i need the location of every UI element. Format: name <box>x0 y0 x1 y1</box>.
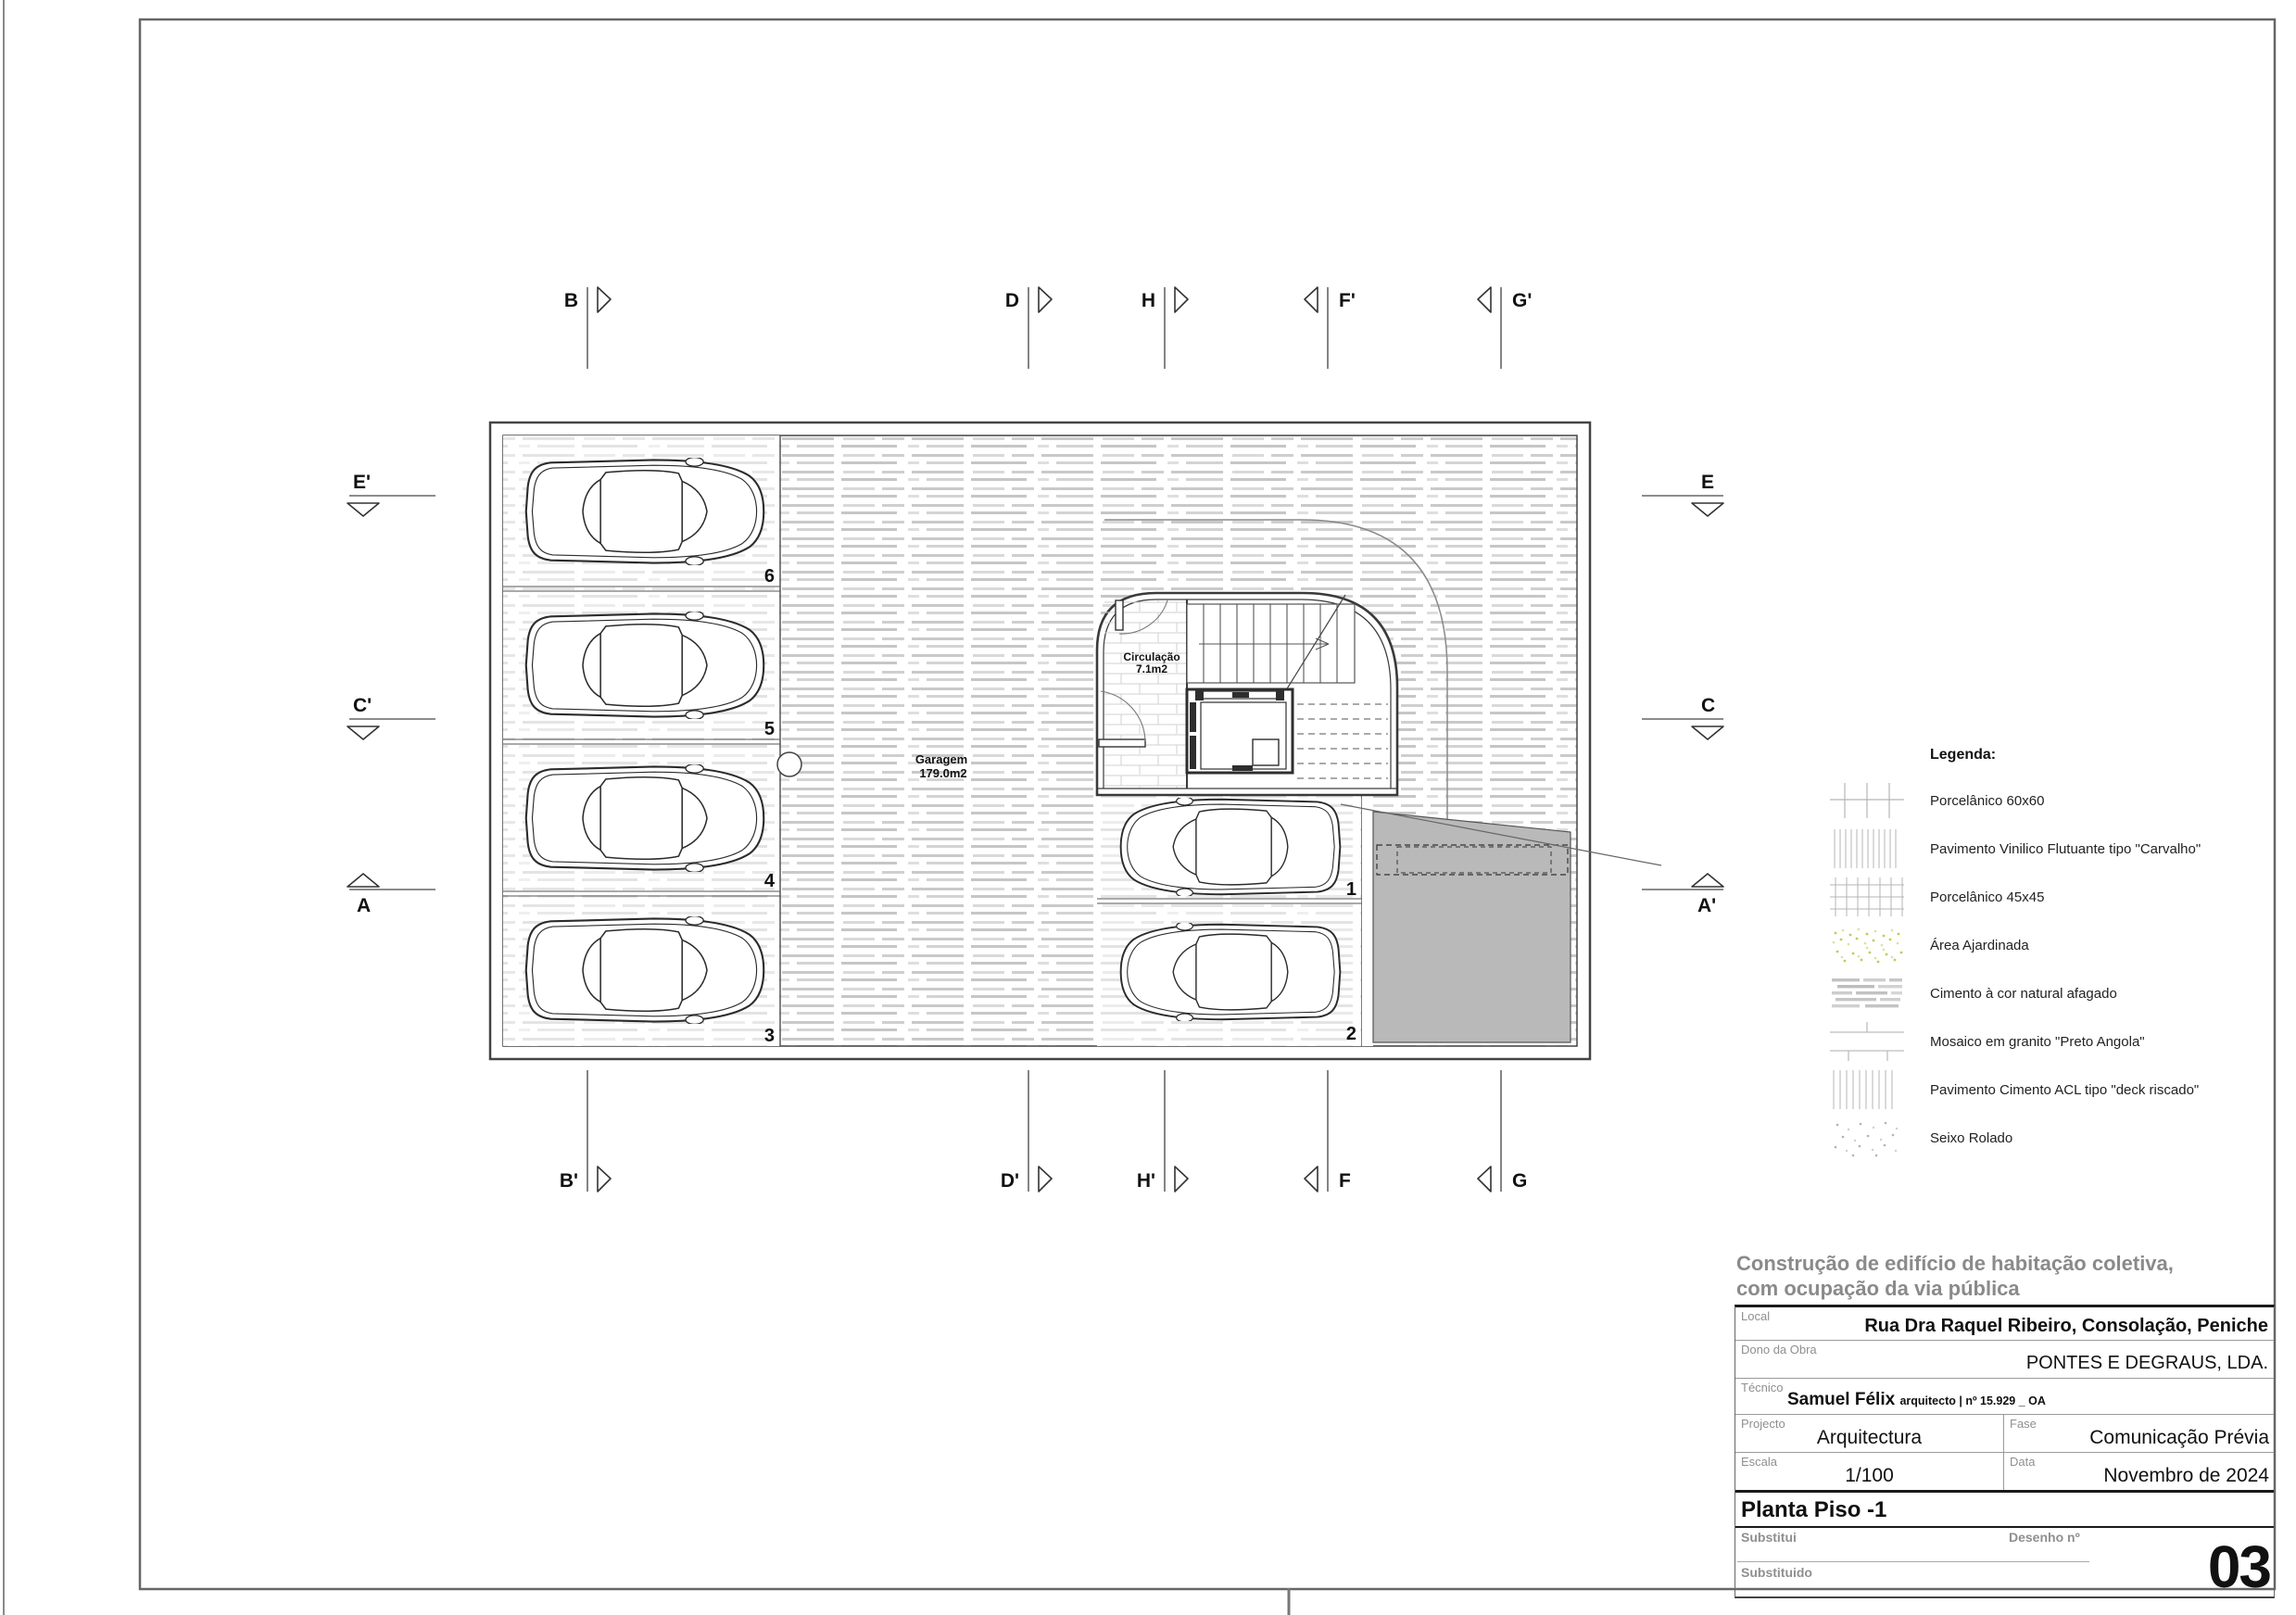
section-marker-E-prime: E' <box>347 472 435 516</box>
section-marker-D2: D' <box>1001 1070 1052 1192</box>
section-marker-G: G <box>1478 1070 1527 1192</box>
legend: Legenda: Porcelânico 60x60 Pavimento Vin… <box>1830 747 2265 1162</box>
stair-core: Circulação 7.1m2 <box>1097 593 1397 795</box>
swatch-cimento-icon <box>1830 974 1904 1013</box>
swatch-acl-icon <box>1830 1070 1904 1109</box>
swatch-porcelanico-60-icon <box>1830 781 1904 820</box>
svg-text:H: H <box>1142 290 1155 311</box>
row-tecnico: Técnico Samuel Félix arquitecto | nº 15.… <box>1735 1379 2274 1415</box>
data-value: Novembro de 2024 <box>2103 1465 2269 1487</box>
column-circle <box>777 752 801 776</box>
car-3 <box>526 916 764 1025</box>
section-marker-B: B <box>564 287 611 369</box>
row-local: Local Rua Dra Raquel Ribeiro, Consolação… <box>1735 1307 2274 1341</box>
stall-number-4: 4 <box>764 871 776 891</box>
section-marker-A: A <box>347 874 435 916</box>
legend-item-acl: Pavimento Cimento ACL tipo "deck riscado… <box>1830 1066 2265 1114</box>
section-marker-E: E <box>1642 472 1723 516</box>
swatch-porcelanico-45-icon <box>1830 877 1904 916</box>
legend-item-porcelanico-45: Porcelânico 45x45 <box>1830 873 2265 921</box>
substitui-label: Substitui <box>1741 1530 1797 1545</box>
substitui-line <box>1737 1561 2089 1562</box>
svg-text:F: F <box>1339 1170 1351 1192</box>
section-marker-C-prime: C' <box>347 695 435 739</box>
dono-label: Dono da Obra <box>1741 1343 1817 1356</box>
svg-text:B': B' <box>560 1170 578 1192</box>
car-4 <box>526 764 764 873</box>
stall-number-3: 3 <box>764 1026 775 1046</box>
row-drawing-title: Planta Piso -1 <box>1735 1493 2274 1528</box>
circulacao-label: Circulação <box>1123 650 1180 663</box>
section-marker-F: F <box>1305 1070 1351 1192</box>
garagem-label: Garagem <box>915 752 967 766</box>
tecnico-value: Samuel Félix arquitecto | nº 15.929 _ OA <box>1787 1390 2046 1410</box>
row-escala-data: Escala 1/100 Data Novembro de 2024 <box>1735 1453 2274 1493</box>
fase-value: Comunicação Prévia <box>2089 1427 2269 1449</box>
garage-plan: Circulação 7.1m2 6 5 4 3 1 2 <box>490 423 1661 1059</box>
svg-text:B: B <box>564 290 578 311</box>
car-2 <box>1121 922 1341 1022</box>
dono-value: PONTES E DEGRAUS, LDA. <box>2026 1353 2268 1374</box>
fase-label: Fase <box>2010 1417 2037 1431</box>
svg-text:E: E <box>1701 472 1714 493</box>
section-marker-H2: H' <box>1137 1070 1188 1192</box>
project-title: Construção de edifício de habitação cole… <box>1736 1251 2275 1301</box>
projecto-value: Arquitectura <box>1735 1427 2003 1449</box>
section-marker-A-prime: A' <box>1642 874 1723 916</box>
svg-text:H': H' <box>1137 1170 1155 1192</box>
escala-value: 1/100 <box>1735 1465 2003 1487</box>
legend-item-vinilico: Pavimento Vinilico Flutuante tipo "Carva… <box>1830 825 2265 873</box>
car-6 <box>526 458 764 566</box>
svg-text:C: C <box>1701 695 1715 716</box>
row-projecto-fase: Projecto Arquitectura Fase Comunicação P… <box>1735 1415 2274 1453</box>
car-1 <box>1121 797 1341 897</box>
svg-text:D: D <box>1005 290 1019 311</box>
tecnico-label: Técnico <box>1741 1381 1784 1394</box>
legend-item-seixo: Seixo Rolado <box>1830 1114 2265 1162</box>
section-marker-F-prime: F' <box>1305 287 1356 369</box>
swatch-vinilico-icon <box>1830 829 1904 868</box>
legend-title: Legenda: <box>1930 747 2265 763</box>
local-label: Local <box>1741 1309 1770 1323</box>
desenho-number: 03 <box>2208 1537 2270 1596</box>
swatch-granito-icon <box>1830 1022 1904 1061</box>
section-marker-H: H <box>1142 287 1188 369</box>
drawing-sheet: Circulação 7.1m2 6 5 4 3 1 2 <box>0 0 2296 1615</box>
legend-item-cimento: Cimento à cor natural afagado <box>1830 969 2265 1017</box>
substituido-label: Substituido <box>1741 1565 1812 1580</box>
stall-number-5: 5 <box>764 719 775 739</box>
section-marker-G-prime: G' <box>1478 287 1532 369</box>
svg-text:E': E' <box>353 472 371 493</box>
data-label: Data <box>2010 1455 2035 1469</box>
desenho-label: Desenho nº <box>2009 1530 2080 1545</box>
legend-item-porcelanico-60: Porcelânico 60x60 <box>1830 776 2265 825</box>
ramp-area <box>1373 812 1571 1042</box>
swatch-seixo-icon <box>1830 1118 1904 1157</box>
tecnico-suffix: arquitecto | nº 15.929 _ OA <box>1899 1394 2045 1407</box>
elevator <box>1187 688 1293 773</box>
svg-text:A': A' <box>1697 895 1716 916</box>
local-value: Rua Dra Raquel Ribeiro, Consolação, Peni… <box>1864 1316 2268 1337</box>
svg-text:D': D' <box>1001 1170 1019 1192</box>
svg-text:G': G' <box>1512 290 1532 311</box>
legend-item-ajardinada: Área Ajardinada <box>1830 921 2265 969</box>
section-marker-C: C <box>1642 695 1723 739</box>
row-substitui-desenho: Substitui Substituido Desenho nº 03 <box>1735 1528 2274 1596</box>
circulacao-area: 7.1m2 <box>1136 662 1167 675</box>
section-marker-D: D <box>1005 287 1052 369</box>
svg-text:F': F' <box>1339 290 1356 311</box>
legend-item-granito: Mosaico em granito "Preto Angola" <box>1830 1017 2265 1066</box>
title-block: Construção de edifício de habitação cole… <box>1735 1251 2275 1598</box>
car-5 <box>526 612 764 720</box>
section-marker-B2: B' <box>560 1070 611 1192</box>
drawing-title: Planta Piso -1 <box>1741 1497 1886 1523</box>
svg-text:C': C' <box>353 695 372 716</box>
stall-number-1: 1 <box>1346 879 1356 900</box>
staircase <box>1187 604 1355 683</box>
svg-text:G: G <box>1512 1170 1527 1192</box>
svg-text:A: A <box>357 895 371 916</box>
swatch-ajardinada-icon <box>1830 926 1904 965</box>
stall-number-2: 2 <box>1346 1024 1356 1044</box>
stall-number-6: 6 <box>764 566 775 587</box>
garagem-area: 179.0m2 <box>919 766 966 780</box>
row-dono-da-obra: Dono da Obra PONTES E DEGRAUS, LDA. <box>1735 1341 2274 1379</box>
